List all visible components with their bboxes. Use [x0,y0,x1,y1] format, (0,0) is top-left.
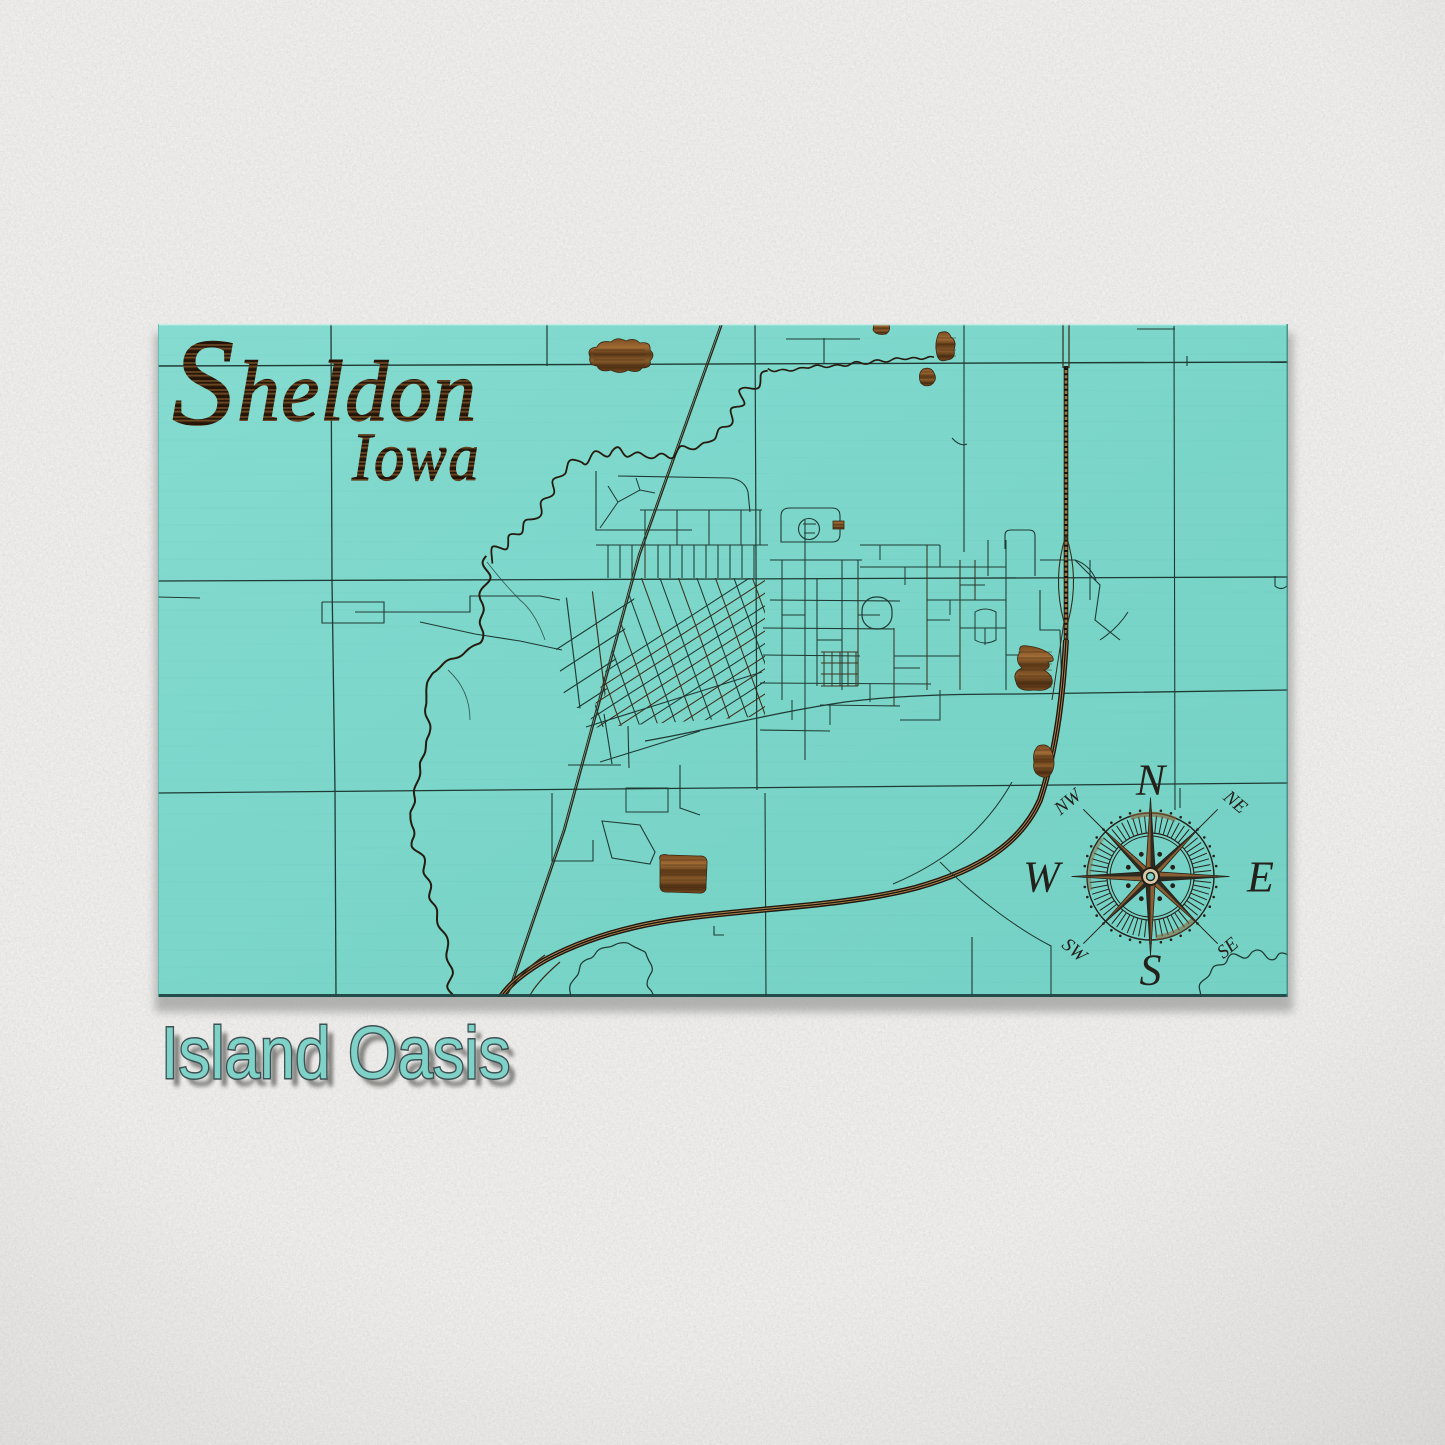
svg-text:E: E [1246,853,1274,902]
svg-text:W: W [1023,853,1063,902]
svg-text:Iowa: Iowa [351,419,480,495]
svg-text:Island Oasis: Island Oasis [161,1013,510,1094]
svg-text:S: S [1140,946,1162,995]
svg-text:S: S [172,314,234,451]
svg-text:N: N [1135,756,1168,805]
